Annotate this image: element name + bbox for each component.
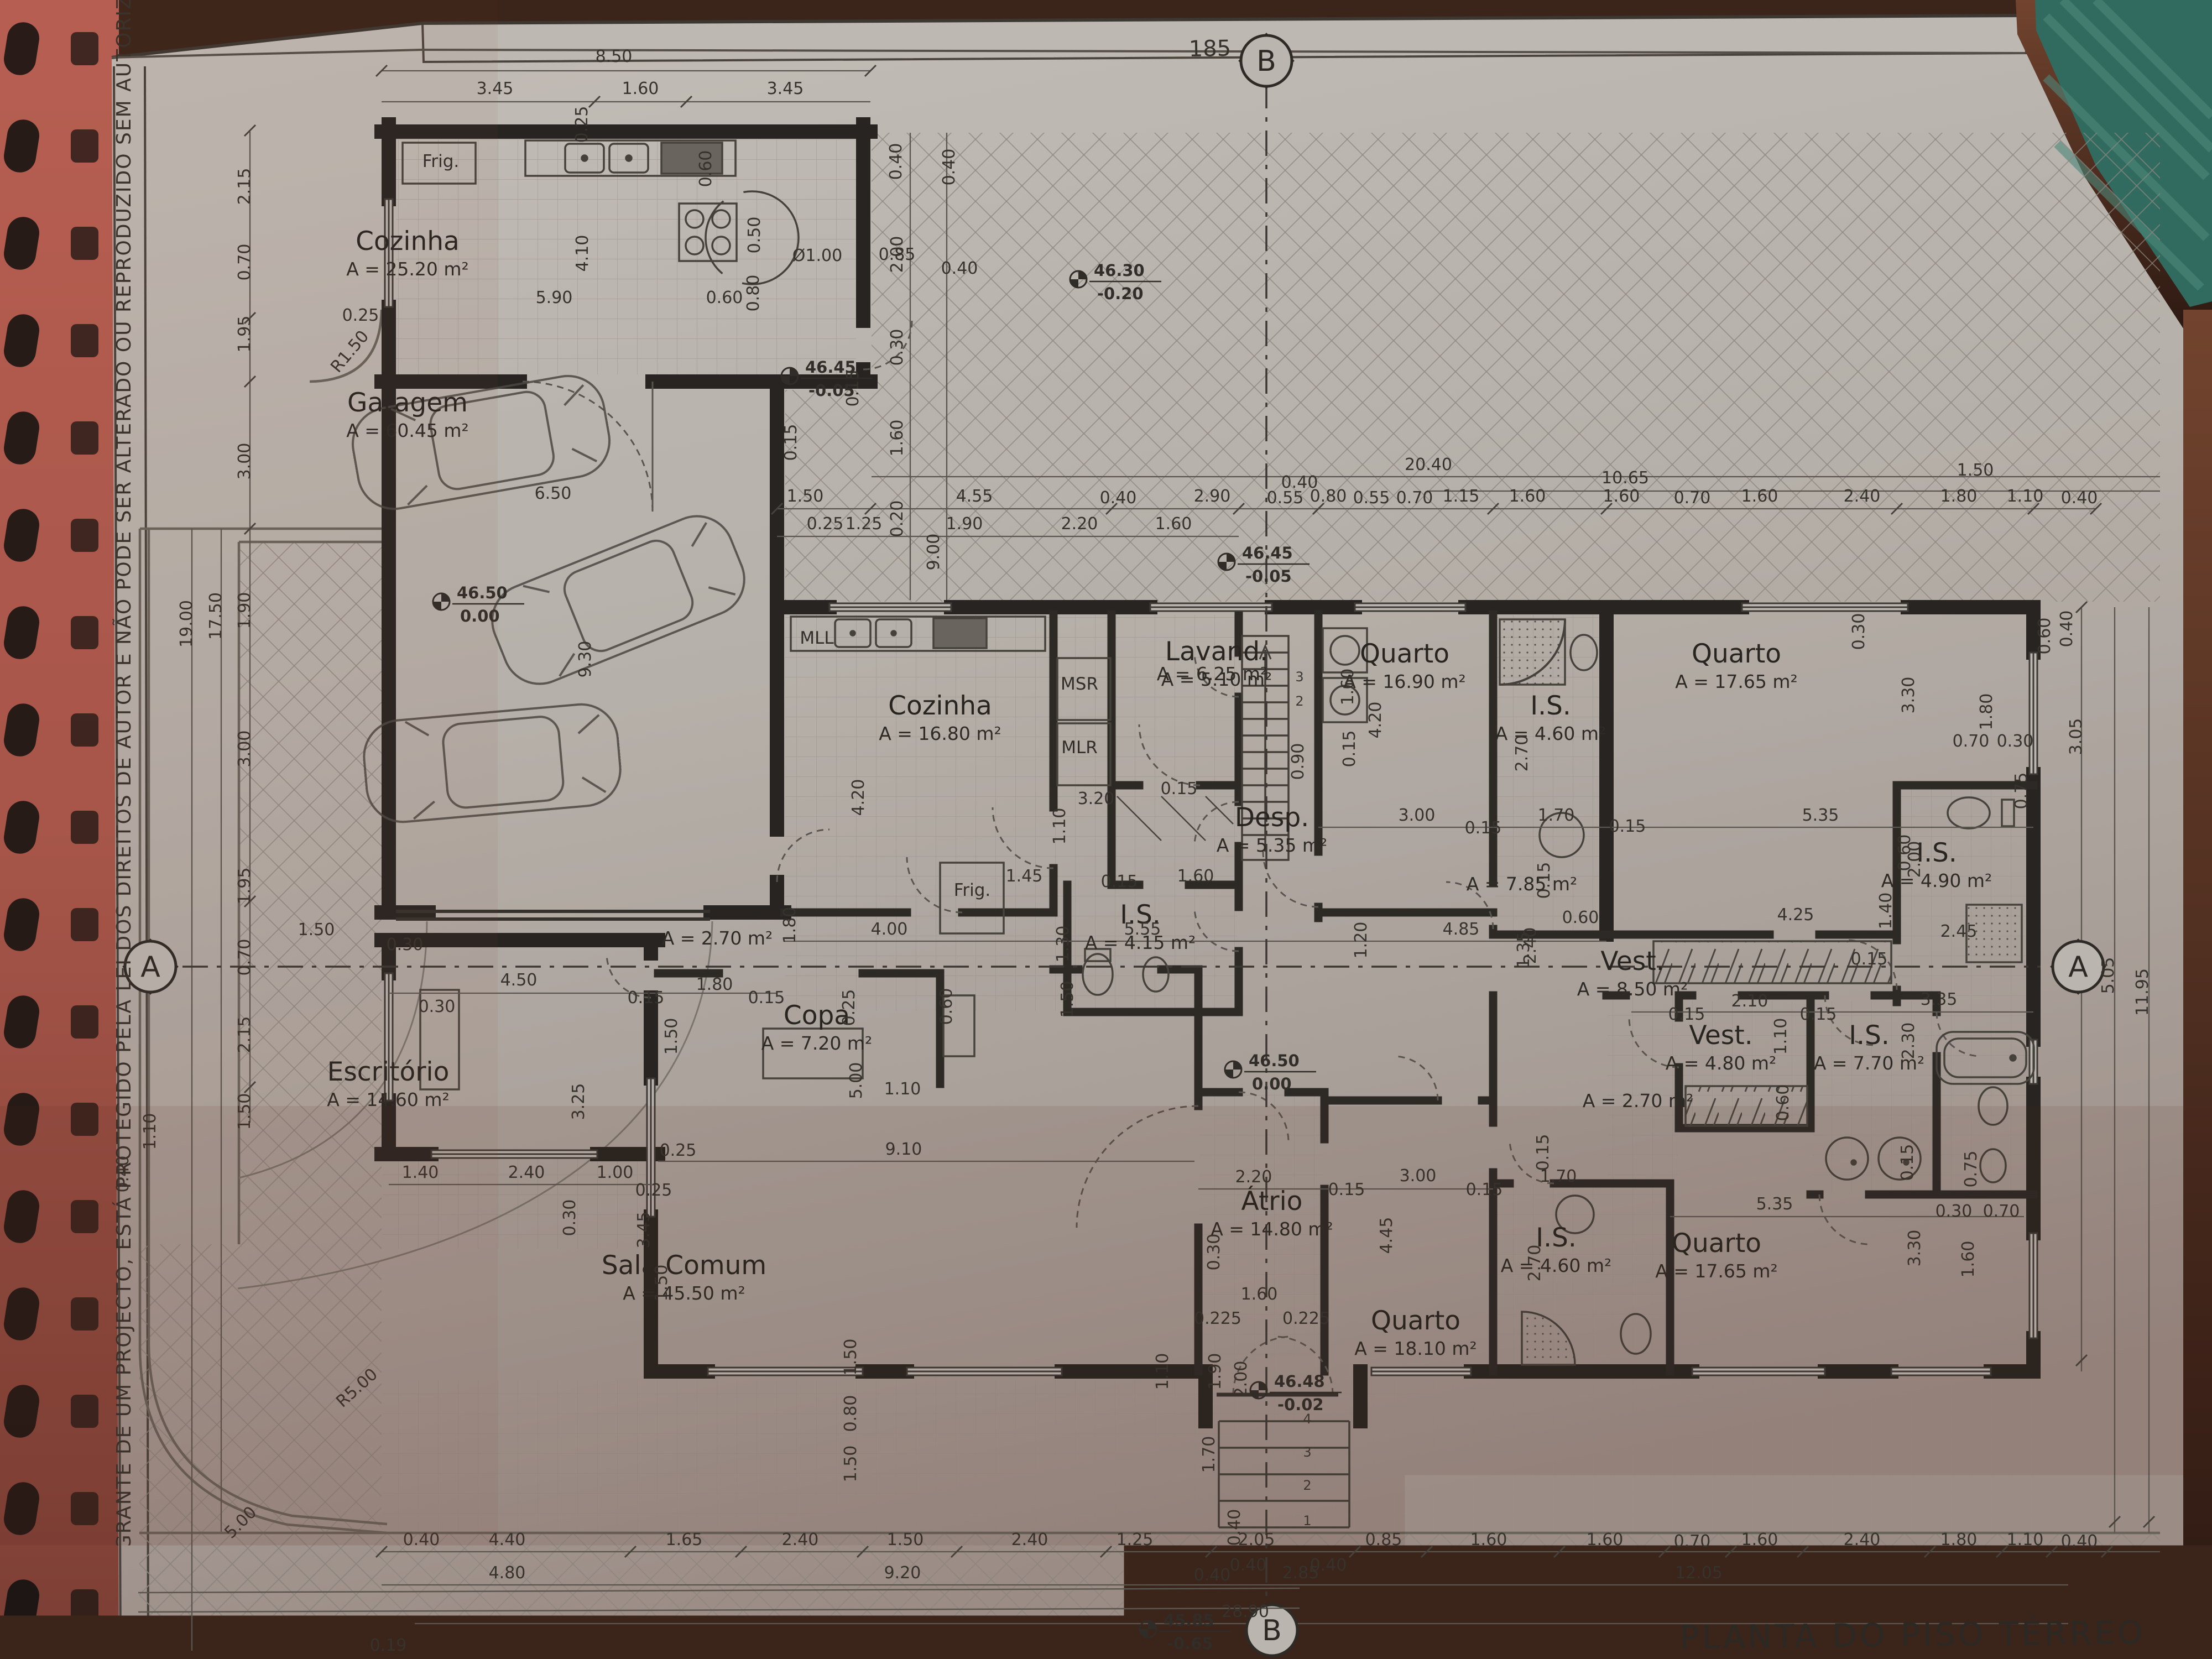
dimension-label: 1.60	[1587, 1530, 1624, 1550]
dimension-label: 1.60	[1509, 487, 1546, 506]
step-number: 3	[1295, 669, 1303, 685]
room-area: A = 4.80 m²	[1666, 1052, 1777, 1074]
dimension-label: 0.40	[1230, 1556, 1267, 1575]
dimension-label: 0.30	[1204, 1234, 1224, 1271]
dimension-label: 2.40	[508, 1163, 545, 1182]
elevation-level: 46.45	[805, 358, 856, 377]
dimension-label: 2.40	[1844, 487, 1881, 506]
dimension-label: 4.85	[1443, 920, 1480, 939]
dimension-label: 0.30	[1997, 732, 2034, 751]
elevation-offset: 0.00	[460, 607, 500, 625]
dimension-label: 2.40	[782, 1530, 819, 1550]
dimension-label: 0.55	[1353, 488, 1390, 508]
dimension-label: 2.30	[1899, 1022, 1918, 1060]
dimension-label: 1.50	[841, 1339, 860, 1376]
dimension-label: 0.90	[1288, 743, 1308, 780]
section-marker-a-right: A	[2052, 940, 2105, 993]
dimension-label: 0.60	[937, 988, 956, 1025]
dimension-label: 0.15	[1101, 872, 1138, 891]
dimension-label: 0.40	[2061, 1532, 2098, 1551]
step-number: 2	[1295, 693, 1303, 709]
area-label: A = 7.85 m²	[1467, 873, 1578, 895]
step-number: 2	[1303, 1478, 1311, 1493]
dimension-label: 0.70	[235, 939, 254, 976]
dimension-label: 2.00	[888, 236, 907, 273]
dimension-label: 4.00	[871, 920, 908, 939]
dimension-label: 0.85	[1365, 1530, 1402, 1550]
dimension-label: 0.30	[560, 1199, 580, 1237]
dimension-label: 9.20	[884, 1563, 921, 1583]
dimension-label: 0.15	[1898, 1144, 1917, 1181]
dimension-label: 6.50	[535, 484, 572, 503]
elevation-offset: 0.00	[1252, 1074, 1292, 1093]
dimension-label: 1.50	[1058, 981, 1077, 1018]
room-name: Desp.	[1235, 802, 1309, 833]
dimension-label: 2.20	[1061, 514, 1098, 534]
dimension-label: 1.80	[1940, 487, 1978, 506]
dimension-label: 0.70	[235, 244, 254, 281]
dimension-label: 1.30	[1053, 926, 1073, 963]
dimension-label: 4.50	[500, 971, 538, 990]
dimension-label: 0.40	[2057, 611, 2077, 648]
dimension-label: 1.60	[888, 420, 907, 457]
dimension-label: 0.60	[1895, 834, 1914, 872]
dimension-label: 1.60	[622, 79, 659, 98]
dimension-label: 3.30	[1905, 1230, 1924, 1267]
dimension-label: 0.80	[841, 1395, 860, 1432]
dimension-label: 1.10	[2007, 1530, 2044, 1550]
dimension-label: 2.90	[1194, 487, 1231, 506]
dimension-label: 3.45	[477, 79, 514, 98]
fixture-label: MLL	[800, 628, 834, 648]
dimension-label: 0.15	[748, 988, 785, 1008]
dimension-label: 1.35	[1514, 932, 1533, 969]
dimension-label: 0.40	[113, 1156, 133, 1193]
dimension-label: 4.25	[1777, 905, 1814, 925]
dimension-label: 4.55	[956, 487, 993, 506]
room-name: Garagem	[347, 388, 468, 418]
dimension-label: 1.50	[841, 1446, 860, 1483]
room-area: A = 17.65 m²	[1675, 671, 1798, 692]
dimension-label: 0.25	[807, 514, 844, 534]
dimension-label: 1.10	[1153, 1353, 1172, 1390]
copyright-note: ESTE DESENHO É PARTE INTEGRANTE DE UM PR…	[112, 0, 135, 1659]
dimension-label: 8.50	[596, 47, 633, 66]
fixture-label: MSR	[1061, 674, 1098, 694]
room-area: A = 16.90 m²	[1343, 671, 1466, 692]
dimension-label: 1.95	[235, 868, 254, 905]
dimension-label: 0.40	[940, 149, 959, 186]
right-table-edge	[2183, 310, 2212, 1659]
room-area: A = 5.35 m²	[1217, 834, 1328, 856]
room-name: Átrio	[1241, 1186, 1303, 1217]
elevation-offset: -0.05	[1245, 567, 1292, 586]
area-label: A = 6.25 m²	[1157, 663, 1268, 685]
fixture-label: Frig.	[422, 152, 459, 171]
dimension-label: Ø1.00	[792, 246, 842, 265]
dimension-label: 0.60	[2035, 618, 2054, 655]
dimension-label: 0.75	[2012, 773, 2031, 810]
dimension-label: 9.00	[924, 534, 943, 571]
dimension-label: 0.70	[1983, 1202, 2020, 1221]
room-name: Quarto	[1692, 639, 1781, 669]
dimension-label: 1.60	[1470, 1530, 1507, 1550]
room-name: Vest.	[1600, 946, 1664, 977]
dimension-label: 0.40	[2061, 488, 2098, 508]
dimension-label: 1.60	[1959, 1241, 1978, 1278]
dimension-label: 1.25	[1117, 1530, 1154, 1550]
dimension-label: 4.45	[1377, 1217, 1396, 1254]
dimension-label: 1.10	[1050, 808, 1070, 845]
dimension-label: 1.80	[780, 907, 800, 944]
area-label: A = 2.70 m²	[1583, 1090, 1694, 1112]
elevation-offset: -0.02	[1277, 1395, 1324, 1414]
room-area: A = 45.50 m²	[623, 1282, 745, 1304]
dimension-label: 1.80	[1977, 693, 1996, 731]
dimension-label: 1.50	[787, 487, 824, 506]
elevation-offset: -0.65	[1167, 1634, 1213, 1653]
dimension-label: 4.80	[489, 1563, 526, 1583]
dimension-label: 2.70	[1525, 1245, 1545, 1282]
dimension-label: 4.20	[1366, 702, 1385, 739]
elevation-level: 46.30	[1094, 261, 1145, 280]
room-name: Quarto	[1672, 1228, 1761, 1259]
dimension-label: 1.10	[1771, 1018, 1791, 1055]
dimension-label: 0.225	[1282, 1309, 1330, 1328]
photo-of-floor-plan: 185	[0, 0, 2212, 1659]
dimension-label: 5.90	[536, 288, 573, 307]
room-name: Cozinha	[888, 691, 992, 721]
dimension-label: 1.40	[402, 1163, 439, 1182]
room-area: A = 14.60 m²	[327, 1089, 450, 1110]
dimension-label: 3.45	[634, 1212, 654, 1249]
dimension-label: 17.50	[206, 592, 226, 640]
dimension-label: 0.70	[1674, 488, 1711, 508]
room-area: A = 14.80 m²	[1211, 1218, 1333, 1240]
dimension-label: 2.40	[1844, 1530, 1881, 1550]
dimension-label: 0.40	[1100, 488, 1137, 508]
marker-letter: A	[140, 951, 160, 984]
dimension-label: 2.05	[1238, 1530, 1275, 1550]
room-name: Quarto	[1360, 639, 1449, 669]
dimension-label: 1.60	[1155, 514, 1192, 534]
elevation-offset: -0.05	[808, 381, 855, 400]
dimension-label: 3.35	[1921, 990, 1958, 1009]
dimension-label: 1.15	[1443, 487, 1480, 506]
dimension-label: 1.95	[235, 316, 254, 353]
dimension-label: 1.10	[140, 1113, 160, 1150]
dimension-label: 0.25	[572, 106, 592, 143]
dimension-label: 5.05	[2099, 957, 2118, 994]
dimension-label: 0.15	[781, 424, 801, 461]
dimension-label: 0.30	[387, 935, 424, 954]
dimension-label: 0.15	[1328, 1180, 1365, 1199]
dimension-label: 9.30	[576, 641, 595, 678]
dimension-label: 5.35	[1802, 806, 1839, 825]
dimension-label: 10.65	[1601, 468, 1649, 488]
dimension-label: 1.90	[235, 592, 254, 629]
dimension-label: 0.20	[888, 500, 907, 538]
dimension-label: 2.70	[1512, 735, 1532, 772]
dimension-label: 1.60	[1741, 487, 1778, 506]
room-area: A = 60.45 m²	[346, 420, 469, 441]
room-name: Escritório	[327, 1057, 450, 1087]
dimension-label: 1.60	[1241, 1285, 1278, 1304]
dimension-label: 0.40	[941, 259, 978, 278]
dimension-label: 2.00	[1232, 1361, 1251, 1398]
room-name: Cozinha	[356, 226, 460, 257]
dimension-label: 3.45	[767, 79, 804, 98]
dimension-label: 3.00	[1399, 806, 1436, 825]
dimension-label: 0.15	[1533, 1134, 1553, 1171]
dimension-label: 1.45	[1006, 867, 1043, 886]
room-area: A = 16.80 m²	[879, 723, 1001, 744]
area-label: A = 2.70 m²	[662, 927, 773, 949]
dimension-label: 12.05	[1675, 1563, 1723, 1583]
dimension-label: 1.10	[2007, 487, 2044, 506]
dimension-label: 0.55	[1267, 488, 1304, 508]
dimension-label: 0.80	[1310, 487, 1347, 506]
elevation-level: 46.48	[1274, 1372, 1325, 1391]
terrace-hatch-left	[239, 542, 382, 1244]
dimension-label: 0.60	[1562, 908, 1599, 927]
elevation-level: 46.50	[457, 583, 508, 602]
dimension-label: 2.20	[1235, 1167, 1272, 1187]
room-area: A = 25.20 m²	[346, 258, 469, 280]
dimension-label: 1.40	[1876, 893, 1896, 930]
dimension-label: 4.10	[573, 235, 592, 272]
dimension-label: 1.80	[696, 975, 733, 994]
room-area: A = 4.60 m²	[1501, 1255, 1612, 1276]
dimension-label: 1.60	[1741, 1530, 1778, 1550]
dimension-label: 3.00	[1400, 1166, 1437, 1186]
dimension-label: 1.00	[597, 1163, 634, 1182]
dimension-label: 20.40	[1405, 455, 1452, 474]
dimension-label: 0.50	[745, 217, 764, 254]
room-area: A = 8.50 m²	[1577, 978, 1688, 1000]
room-area: A = 17.65 m²	[1655, 1260, 1778, 1282]
dimension-label: 1.50	[1957, 461, 1994, 480]
dimension-label: 0.70	[1953, 732, 1990, 751]
dimension-label: 0.30	[419, 997, 456, 1016]
room-name: Lavand.	[1165, 637, 1268, 667]
room-area: A = 7.20 m²	[761, 1032, 873, 1054]
dimension-label: 0.15	[1668, 1005, 1705, 1024]
dimension-label: 1.10	[884, 1079, 921, 1099]
dimension-label: 2.45	[1940, 922, 1978, 941]
dimension-label: 3.00	[235, 443, 254, 480]
fixture-label: MLR	[1061, 738, 1098, 758]
dimension-label: 11.95	[2133, 968, 2152, 1016]
dimension-label: 2.10	[1731, 992, 1768, 1011]
dimension-label: 3.00	[235, 731, 254, 768]
blueprint-photo-canvas: 185	[0, 0, 2212, 1659]
dimension-label: 0.15	[1800, 1005, 1837, 1024]
elevation-offset: -0.20	[1097, 284, 1144, 303]
dimension-label: 0.25	[839, 989, 859, 1026]
dimension-label: 9.10	[885, 1140, 922, 1159]
page-number: 185	[1188, 36, 1231, 62]
dimension-label: 0.60	[706, 288, 743, 307]
dimension-label: 2.15	[235, 1016, 254, 1053]
room-name: I.S.	[1530, 691, 1571, 721]
elevation-level: 46.45	[1242, 544, 1293, 562]
elevation-level: 45.85	[1164, 1611, 1214, 1630]
dimension-label: 1.90	[946, 514, 983, 534]
dimension-label: 1.50	[235, 1093, 254, 1130]
fixture-label: Frig.	[954, 880, 990, 900]
step-number: 1	[1303, 1513, 1311, 1528]
room-name: Vest.	[1689, 1020, 1752, 1051]
room-name: I.S.	[1849, 1020, 1890, 1051]
dimension-label: 0.60	[1773, 1084, 1793, 1121]
dimension-label: 0.15	[628, 988, 665, 1008]
dimension-label: 4.40	[489, 1530, 526, 1550]
room-name: Sala Comum	[602, 1250, 766, 1281]
room-area: A = 4.60 m²	[1495, 723, 1606, 744]
room-name: Quarto	[1371, 1306, 1460, 1336]
dimension-label: 2.40	[1011, 1530, 1048, 1550]
dimension-label: 0.25	[342, 306, 379, 325]
marker-letter: A	[2068, 951, 2088, 984]
dimension-label: 1.25	[846, 514, 883, 534]
room-area: A = 18.10 m²	[1354, 1338, 1477, 1359]
dimension-label: 0.40	[403, 1530, 440, 1550]
dimension-label: 3.30	[1899, 677, 1918, 714]
dimension-label: 0.30	[888, 329, 907, 366]
marker-letter: B	[1256, 45, 1276, 78]
dimension-label: 0.15	[1609, 817, 1646, 836]
dimension-label: 1.20	[1352, 922, 1371, 959]
dimension-label: 28.90	[1222, 1602, 1269, 1621]
elevation-level: 46.50	[1249, 1051, 1300, 1070]
dimension-label: 3.25	[569, 1083, 588, 1120]
dimension-label: 1.70	[1199, 1436, 1219, 1473]
dimension-label: 0.80	[744, 275, 763, 312]
dimension-label: 1.50	[298, 920, 335, 940]
dimension-label: 1.50	[652, 1265, 671, 1302]
dimension-label: 0.40	[886, 143, 906, 180]
dimension-label: 0.15	[1161, 779, 1198, 799]
drawing-title: PLANTA DO PISO TÉRREO	[1679, 1613, 2146, 1656]
dimension-label: 0.40	[1194, 1566, 1231, 1585]
room-area: A = 4.90 m²	[1881, 870, 1992, 891]
dimension-label: 4.20	[849, 779, 868, 816]
dimension-label: 0.15	[1851, 950, 1888, 969]
dimension-label: 1.60	[1338, 669, 1358, 706]
dimension-label: 5.00	[847, 1062, 866, 1099]
dimension-label: 5.35	[1756, 1194, 1793, 1214]
dimension-label: 1.50	[887, 1530, 924, 1550]
dimension-label: 0.30	[1849, 613, 1869, 650]
step-number: 3	[1303, 1444, 1311, 1460]
section-marker-b-top: B	[1240, 34, 1293, 87]
dimension-label: 3.05	[2067, 718, 2086, 755]
dimension-label: 1.60	[1603, 487, 1640, 506]
dimension-label: 0.75	[1961, 1151, 1981, 1188]
dimension-label: 1.65	[666, 1530, 703, 1550]
dimension-label: 5.55	[1124, 920, 1161, 939]
dimension-label: 19.00	[177, 600, 196, 648]
dimension-label: 0.15	[1465, 818, 1502, 838]
dimension-label: 1.70	[1538, 806, 1575, 825]
dimension-label: 1.80	[1940, 1530, 1978, 1550]
dimension-label: 1.50	[662, 1018, 681, 1055]
dimension-label: 0.15	[1340, 731, 1359, 768]
dimension-label: 2.15	[235, 168, 254, 205]
dimension-label: 0.30	[1936, 1202, 1973, 1221]
dimension-label: 0.60	[696, 150, 716, 187]
dimension-label: 1.60	[1177, 867, 1214, 886]
dimension-label: 2.85	[1282, 1563, 1319, 1583]
dimension-label: 0.70	[1396, 488, 1433, 508]
dimension-label: 0.225	[1194, 1309, 1241, 1328]
dimension-label: 0.19	[370, 1636, 407, 1655]
dimension-label: 0.25	[635, 1181, 672, 1200]
dimension-label: 0.70	[1674, 1532, 1711, 1551]
dimension-label: 3.20	[1078, 789, 1115, 808]
dimension-label: 1.90	[1206, 1353, 1225, 1390]
dimension-label: 0.15	[1466, 1180, 1503, 1199]
dimension-label: 0.25	[660, 1141, 697, 1160]
